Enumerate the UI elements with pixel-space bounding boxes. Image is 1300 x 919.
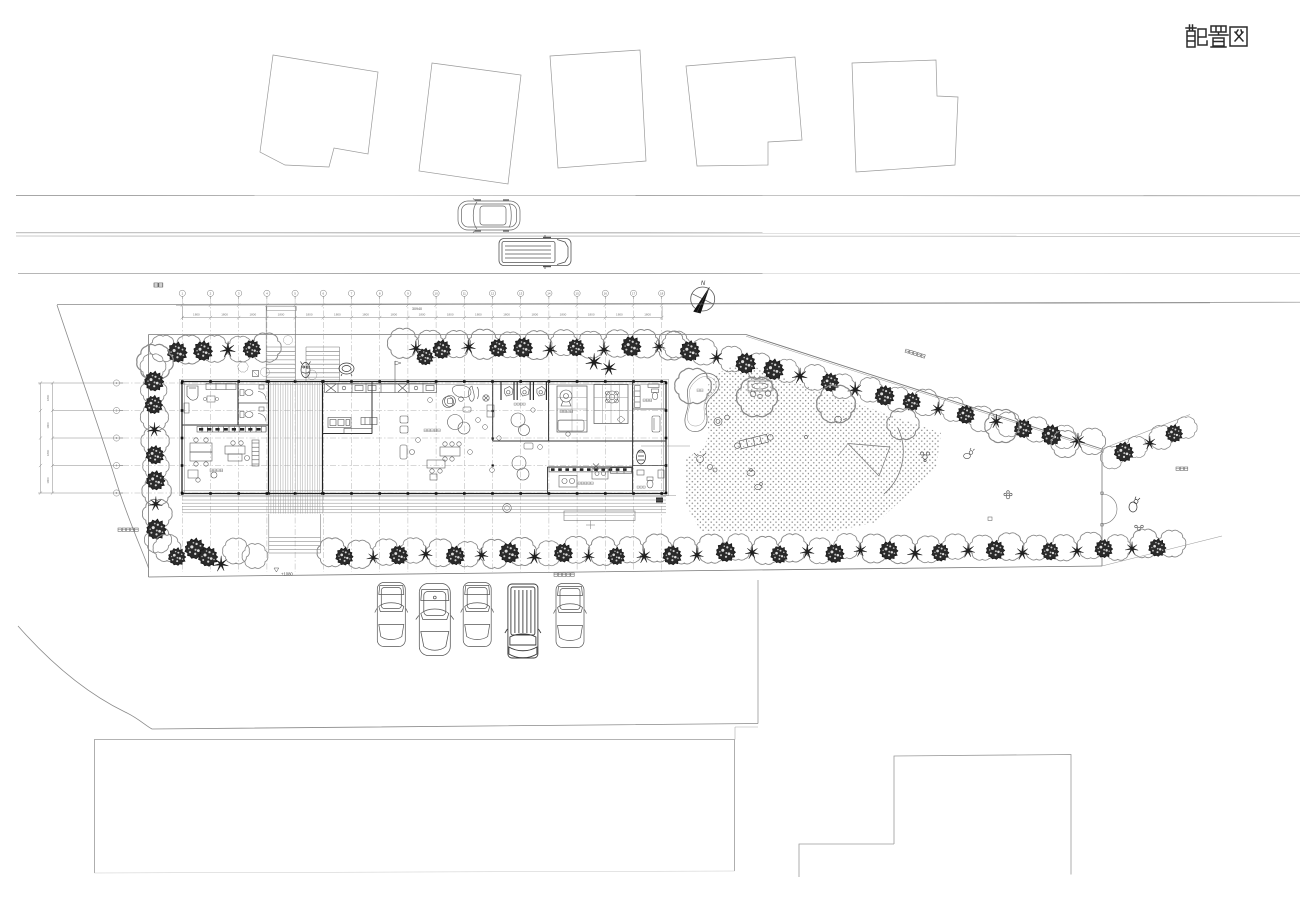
svg-text:1800: 1800 <box>644 313 651 317</box>
svg-text:1800: 1800 <box>46 477 50 484</box>
svg-text:10: 10 <box>434 291 438 295</box>
svg-text:1800: 1800 <box>278 313 285 317</box>
svg-text:9: 9 <box>407 291 409 295</box>
svg-text:1800: 1800 <box>560 313 567 317</box>
svg-text:1800: 1800 <box>306 313 313 317</box>
svg-text:+1080: +1080 <box>281 572 293 577</box>
svg-text:13: 13 <box>519 291 523 295</box>
svg-text:6: 6 <box>322 291 324 295</box>
svg-text:12: 12 <box>491 291 495 295</box>
svg-text:1800: 1800 <box>419 313 426 317</box>
svg-text:16: 16 <box>604 291 608 295</box>
svg-text:3: 3 <box>238 291 240 295</box>
svg-text:1800: 1800 <box>46 449 50 456</box>
svg-text:1800: 1800 <box>390 313 397 317</box>
svg-text:5: 5 <box>294 291 296 295</box>
svg-text:1800: 1800 <box>221 313 228 317</box>
svg-text:1800: 1800 <box>46 394 50 401</box>
svg-text:1800: 1800 <box>447 313 454 317</box>
svg-text:11: 11 <box>463 291 466 295</box>
svg-text:4: 4 <box>266 291 268 295</box>
svg-text:N: N <box>701 281 706 287</box>
svg-text:1800: 1800 <box>362 313 369 317</box>
svg-text:1: 1 <box>181 291 183 295</box>
svg-text:1800: 1800 <box>616 313 623 317</box>
svg-text:30940: 30940 <box>412 307 422 311</box>
svg-text:1800: 1800 <box>249 313 256 317</box>
svg-text:8: 8 <box>379 291 381 295</box>
svg-text:1800: 1800 <box>193 313 200 317</box>
svg-text:1800: 1800 <box>588 313 595 317</box>
svg-text:18: 18 <box>660 291 664 295</box>
svg-text:1800: 1800 <box>334 313 341 317</box>
svg-text:1800: 1800 <box>46 422 50 429</box>
svg-text:15: 15 <box>575 291 579 295</box>
svg-text:1800: 1800 <box>531 313 538 317</box>
svg-text:1800: 1800 <box>503 313 510 317</box>
svg-text:14: 14 <box>547 291 551 295</box>
svg-text:2: 2 <box>210 291 212 295</box>
svg-text:1800: 1800 <box>475 313 482 317</box>
svg-text:17: 17 <box>632 291 636 295</box>
svg-text:7: 7 <box>351 291 353 295</box>
